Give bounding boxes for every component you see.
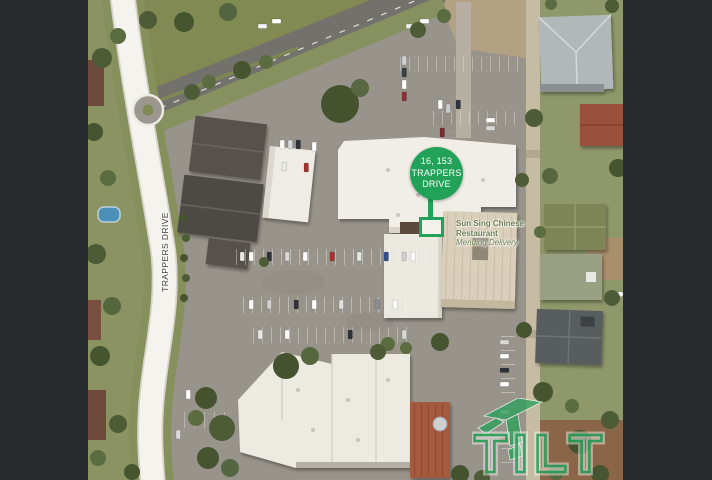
building-shopping-centre-lower xyxy=(384,234,442,318)
pin-label-line: DRIVE xyxy=(422,179,451,191)
restaurant-label-line: Restaurant xyxy=(456,229,551,239)
restaurant-label: Sun Sing Chinese Restaurant Menulog Deli… xyxy=(456,219,551,248)
restaurant-label-line: Sun Sing Chinese xyxy=(456,219,551,229)
swimming-pool xyxy=(98,207,120,222)
building-white-small xyxy=(262,146,315,222)
building-terracotta xyxy=(410,402,450,478)
map-pin-stem xyxy=(428,198,433,219)
aerial-map-image: 16, 153 TRAPPERS DRIVE TRAPPERS DRIVE Su… xyxy=(88,0,623,480)
letterbox-background: 16, 153 TRAPPERS DRIVE TRAPPERS DRIVE Su… xyxy=(0,0,712,480)
pin-label-line: 16, 153 xyxy=(421,156,452,168)
pin-label-line: TRAPPERS xyxy=(411,168,461,180)
road-label: TRAPPERS DRIVE xyxy=(160,212,174,292)
map-pin: 16, 153 TRAPPERS DRIVE xyxy=(410,147,463,200)
tilt-watermark: TILT TILT xyxy=(472,398,623,480)
restaurant-label-line: Menulog Delivery xyxy=(456,238,551,248)
highlighted-unit xyxy=(419,217,444,237)
tilt-watermark-text: TILT xyxy=(474,424,608,480)
